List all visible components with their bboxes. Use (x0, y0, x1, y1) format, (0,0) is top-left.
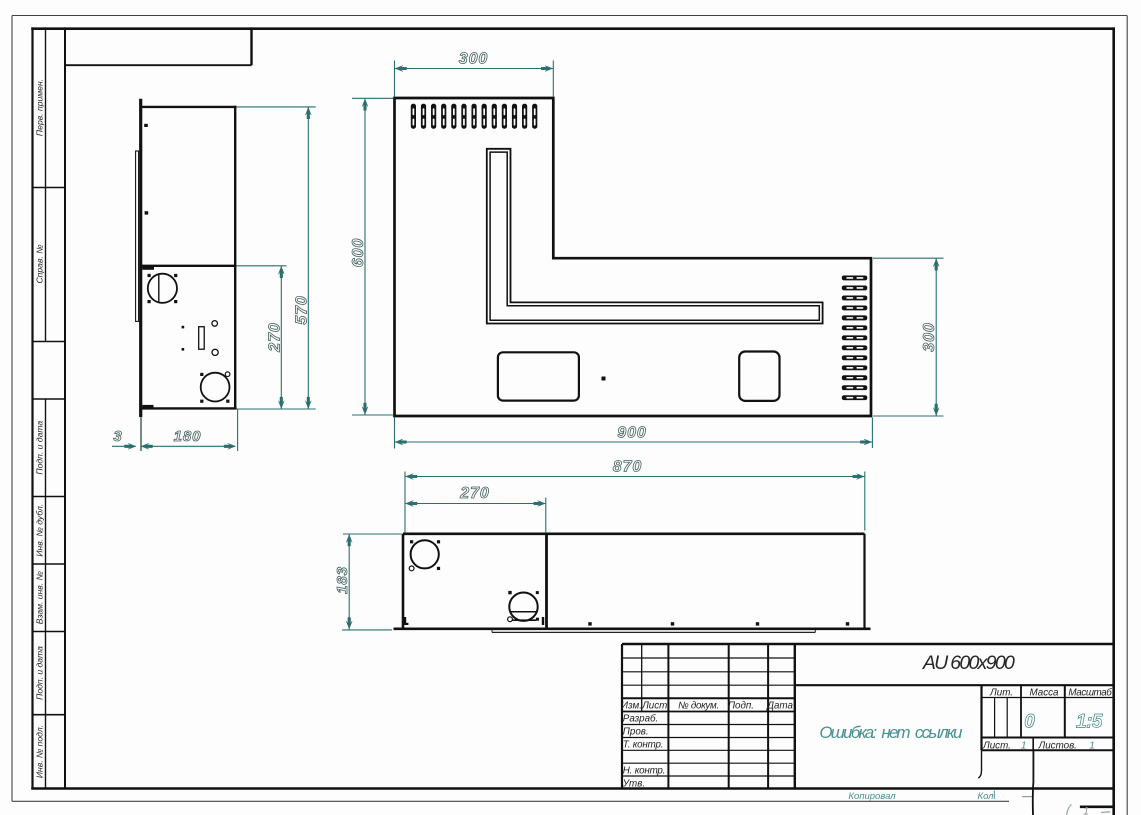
svg-text:Кол: Кол (977, 791, 994, 802)
svg-text:183: 183 (334, 566, 351, 594)
svg-text:Пров.: Пров. (623, 727, 649, 738)
svg-text:Подп. и дата: Подп. и дата (35, 646, 45, 700)
svg-text:300: 300 (459, 50, 488, 67)
svg-text:3: 3 (113, 428, 122, 445)
svg-text:Ошибка: нет ссылки: Ошибка: нет ссылки (819, 723, 963, 742)
svg-text:Подп. и дата: Подп. и дата (35, 421, 45, 475)
svg-text:1: 1 (1083, 806, 1089, 815)
svg-text:Копировал: Копировал (848, 791, 896, 802)
svg-text:0: 0 (1024, 712, 1035, 733)
svg-text:1: 1 (1021, 739, 1027, 751)
svg-text:Инв. № подл.: Инв. № подл. (35, 725, 45, 778)
svg-text:Масса: Масса (1030, 688, 1060, 699)
svg-text:600: 600 (350, 238, 367, 267)
svg-text:570: 570 (294, 295, 311, 324)
svg-text:870: 870 (613, 458, 642, 475)
svg-text:900: 900 (617, 425, 646, 442)
svg-text:Лист.: Лист. (982, 740, 1011, 751)
svg-text:Листов.: Листов. (1038, 740, 1077, 751)
svg-text:270: 270 (267, 322, 284, 352)
svg-text:Разраб.: Разраб. (623, 713, 658, 724)
svg-text:Инв. № дубл.: Инв. № дубл. (35, 504, 45, 557)
svg-text:270: 270 (459, 485, 489, 502)
svg-text:AU 600x900: AU 600x900 (922, 652, 1015, 674)
svg-text:Лист: Лист (641, 700, 667, 711)
svg-text:1: 1 (1089, 739, 1095, 751)
svg-text:Подп.: Подп. (728, 700, 754, 711)
svg-text:Лит.: Лит. (989, 688, 1013, 699)
svg-text:Справ. №: Справ. № (35, 244, 45, 283)
svg-text:Т. контр.: Т. контр. (623, 740, 663, 751)
svg-text:Масштаб: Масштаб (1068, 688, 1112, 699)
svg-text:1:5: 1:5 (1076, 712, 1103, 733)
svg-text:Дата: Дата (766, 700, 793, 711)
svg-text:300: 300 (921, 322, 938, 351)
svg-text:180: 180 (174, 428, 202, 445)
svg-text:Взам. инв. №: Взам. инв. № (35, 571, 45, 624)
svg-text:№ докум.: № докум. (678, 700, 719, 711)
svg-text:Изм.: Изм. (621, 700, 642, 711)
svg-text:Перв. примен.: Перв. примен. (35, 79, 45, 136)
svg-text:Н. контр.: Н. контр. (623, 765, 665, 776)
svg-text:Утв.: Утв. (622, 778, 645, 789)
